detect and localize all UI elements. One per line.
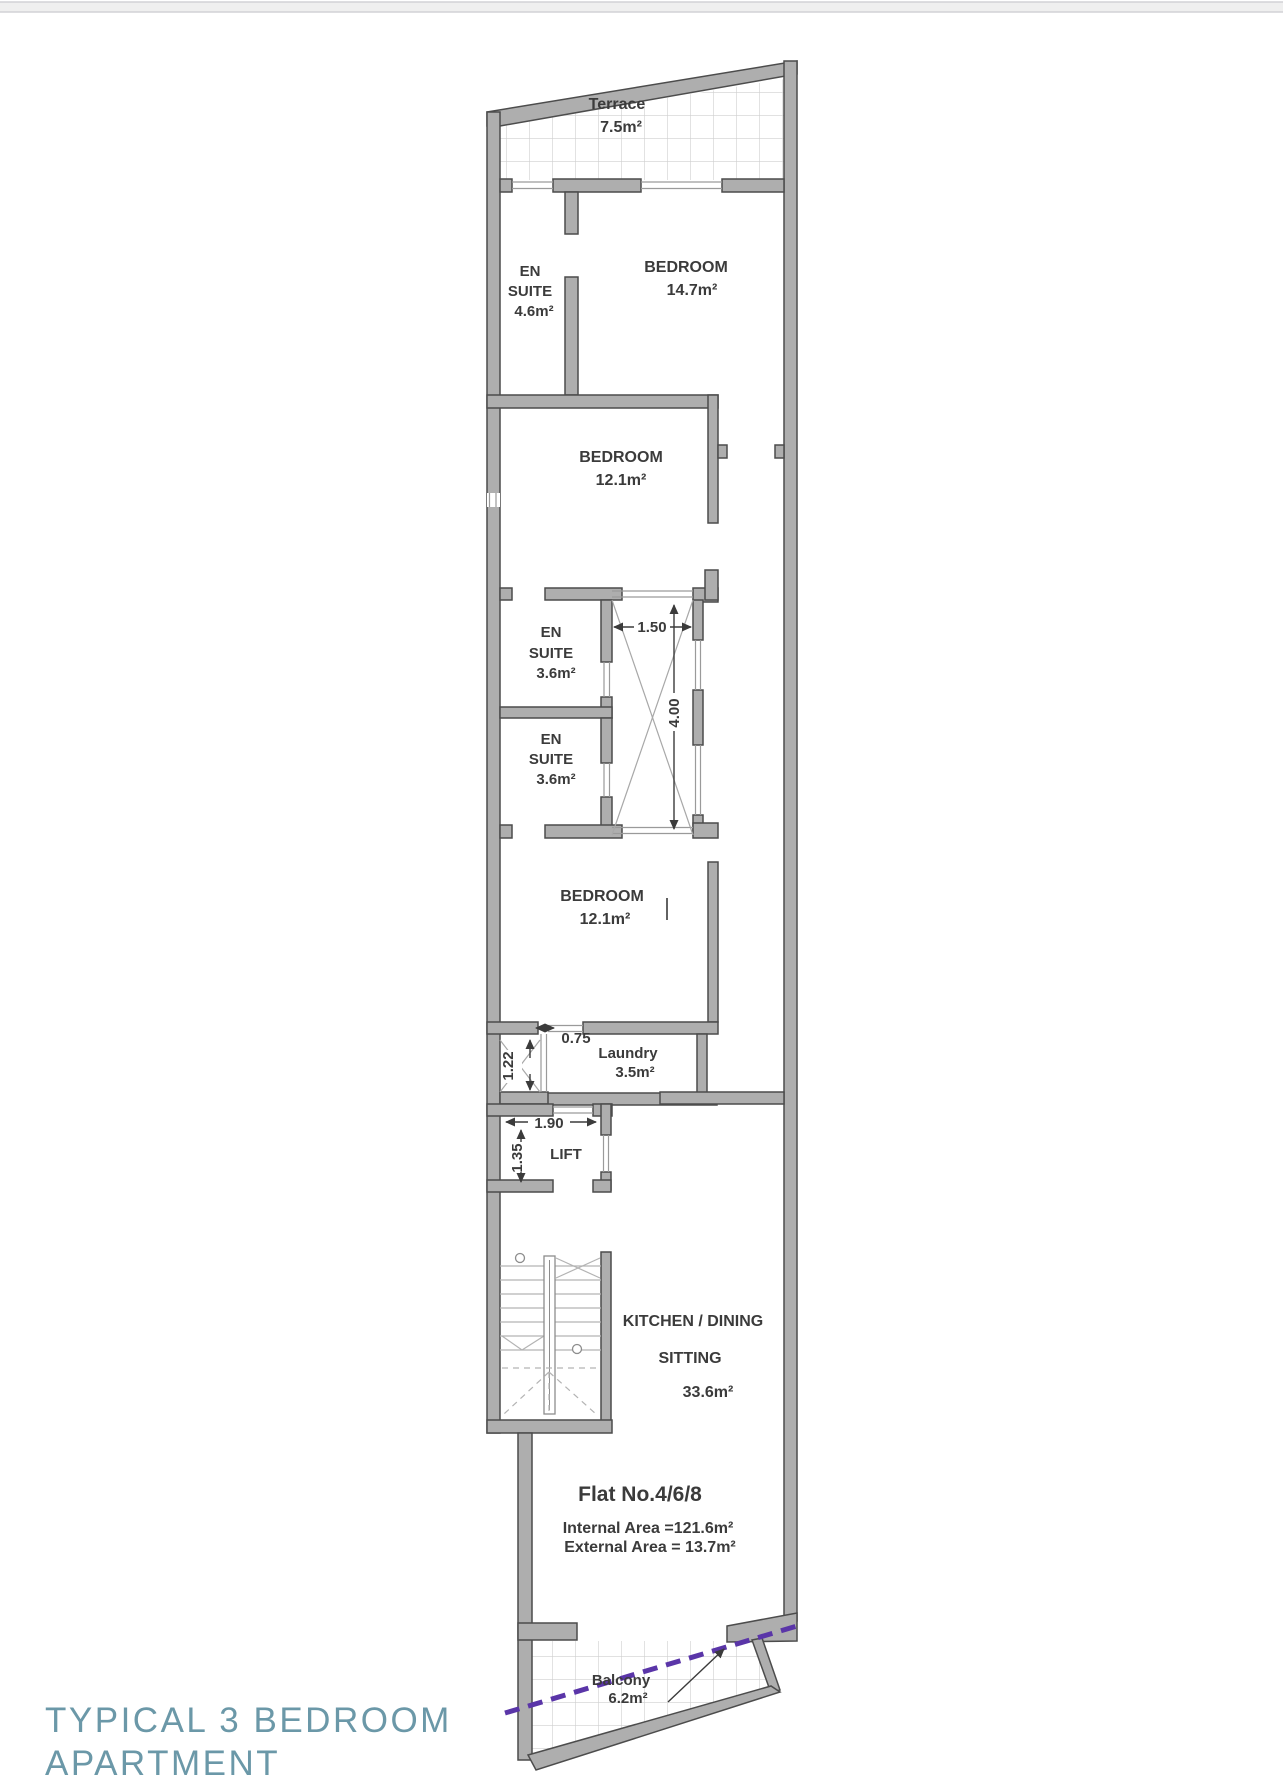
bedroom-top-label: BEDROOM [644, 259, 728, 276]
flat-info: Flat No.4/6/8 Internal Area =121.6m² Ext… [563, 1483, 736, 1556]
flat-external-area: External Area = 13.7m² [564, 1539, 736, 1556]
floor-plan-svg: 1.50 4.00 0.75 1.22 1.90 1.35 Terrace 7.… [0, 0, 1283, 1787]
kitchen-label-2: SITTING [658, 1350, 721, 1367]
kitchen-area: 33.6m² [683, 1384, 734, 1401]
terrace-label: Terrace [589, 96, 646, 113]
lift-label: LIFT [550, 1146, 582, 1163]
footer-title-line2: APARTMENT [45, 1744, 280, 1783]
ensuite-b-area: 3.6m² [536, 771, 575, 788]
terrace-area: 7.5m² [600, 119, 642, 136]
bedroom-top-area: 14.7m² [667, 282, 718, 299]
flat-internal-area: Internal Area =121.6m² [563, 1520, 734, 1537]
dim-shaft-height: 4.00 [666, 698, 683, 727]
bedroom-low-label: BEDROOM [560, 888, 644, 905]
ensuite-a-label-2: SUITE [529, 645, 573, 662]
right-outer-wall [784, 61, 797, 1621]
dim-lift-height: 1.35 [509, 1143, 526, 1172]
stairs [500, 1254, 601, 1417]
balcony-label: Balcony [592, 1672, 651, 1689]
ensuite-top-label-2: SUITE [508, 283, 552, 300]
page-top-edge [0, 2, 1283, 12]
bedroom-low-area: 12.1m² [580, 911, 631, 928]
ensuite-a-label-1: EN [541, 624, 562, 641]
bedroom-mid-area: 12.1m² [596, 472, 647, 489]
dim-duct-height: 1.22 [500, 1051, 517, 1080]
footer-title: TYPICAL 3 BEDROOM APARTMENT [45, 1701, 452, 1783]
ensuite-a-area: 3.6m² [536, 665, 575, 682]
ensuite-b-label-1: EN [541, 731, 562, 748]
laundry-label: Laundry [598, 1045, 658, 1062]
kitchen-label-1: KITCHEN / DINING [623, 1313, 763, 1330]
footer-title-line1: TYPICAL 3 BEDROOM [45, 1701, 452, 1740]
floor-plan-page: 1.50 4.00 0.75 1.22 1.90 1.35 Terrace 7.… [0, 0, 1283, 1787]
ensuite-b-label-2: SUITE [529, 751, 573, 768]
dim-lift-width: 1.90 [534, 1115, 563, 1132]
ensuite-top-label-1: EN [520, 263, 541, 280]
balcony-area: 6.2m² [608, 1690, 647, 1707]
room-labels: Terrace 7.5m² EN SUITE 4.6m² BEDROOM 14.… [508, 96, 763, 1707]
dim-shaft-width: 1.50 [637, 619, 666, 636]
left-outer-wall [487, 112, 500, 1433]
laundry-area: 3.5m² [615, 1064, 654, 1081]
dim-duct-width: 0.75 [561, 1030, 590, 1047]
ensuite-top-area: 4.6m² [514, 303, 553, 320]
bedroom-mid-label: BEDROOM [579, 449, 663, 466]
flat-number: Flat No.4/6/8 [578, 1483, 702, 1506]
